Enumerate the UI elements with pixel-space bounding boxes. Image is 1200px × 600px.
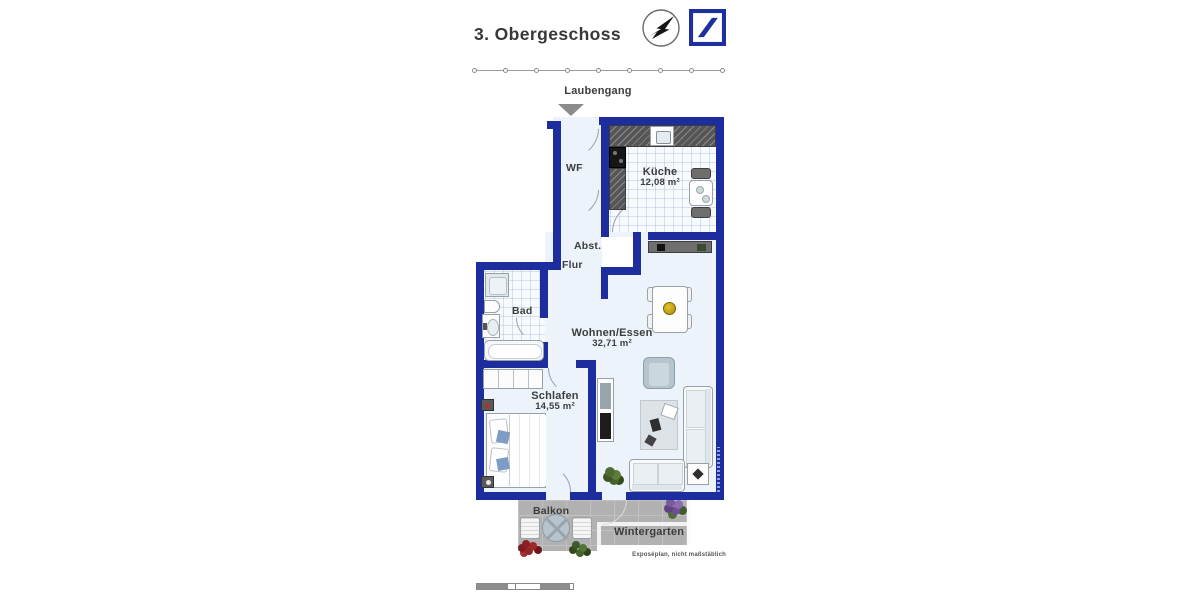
blue-cushion <box>496 457 510 471</box>
page-title: 3. Obergeschoss <box>474 24 621 45</box>
side-table <box>687 463 709 485</box>
room-label-abst: Abst. <box>574 240 601 252</box>
sofa-bottom <box>629 459 685 492</box>
balcony-chair-left <box>520 517 540 539</box>
entrance-arrow-icon <box>558 104 584 116</box>
room-area-schlafen: 14,55 m² <box>523 401 587 412</box>
deutsche-bank-logo <box>689 9 726 46</box>
table-deco <box>696 186 704 194</box>
room-label-bad: Bad <box>512 305 532 317</box>
sideboard-item <box>657 244 665 251</box>
sofa-cushion <box>686 390 706 428</box>
measure-dot <box>627 68 632 73</box>
sofa-right <box>683 386 713 468</box>
laptop <box>660 403 679 420</box>
tv-bench <box>597 378 614 442</box>
measure-dot <box>503 68 508 73</box>
wall-bath-right-upper <box>540 262 548 318</box>
wintergarten-edge-right <box>687 500 691 548</box>
red-flower-plant <box>522 540 530 548</box>
nightstand-deco <box>486 480 491 485</box>
sink-basin <box>656 131 671 144</box>
wall-kitchen-bottom <box>648 232 724 240</box>
kitchen-stove <box>609 147 626 168</box>
scale-segment <box>516 584 541 589</box>
measure-dot <box>689 68 694 73</box>
room-label-balkon: Balkon <box>533 505 569 517</box>
floorplan-sheet: 3. Obergeschoss Laubengang <box>0 0 1200 600</box>
sideboard-item <box>697 244 706 251</box>
wall-hall-stub <box>601 275 608 299</box>
nightstand-bottom <box>481 476 494 488</box>
bathtub <box>484 340 544 361</box>
wall-bottom-b <box>570 492 602 500</box>
nightstand-top <box>481 399 494 411</box>
side-table-item <box>692 468 703 479</box>
sofa-cushion <box>686 429 706 467</box>
sofa-cushion <box>633 463 658 485</box>
footer-note: Exposéplan, nicht maßstäblich <box>606 552 726 558</box>
stove-burner <box>619 159 623 163</box>
wall-bedroom-right <box>588 360 596 500</box>
wall-bottom-a <box>476 492 546 500</box>
wall-storage-bottom <box>601 267 641 275</box>
shower <box>485 273 509 297</box>
scale-segment <box>477 584 508 589</box>
wall-watermark <box>717 447 720 492</box>
room-area-wohnen: 32,71 m² <box>568 338 656 349</box>
measure-dot <box>658 68 663 73</box>
measure-dot <box>534 68 539 73</box>
measure-dot <box>565 68 570 73</box>
measure-dot <box>596 68 601 73</box>
stove-burner <box>613 151 617 155</box>
green-plant-balcony <box>572 541 580 549</box>
media-equipment <box>600 383 611 409</box>
balcony-chair-right <box>572 517 592 539</box>
kitchen-table <box>689 180 713 206</box>
armchair <box>643 357 675 389</box>
laubengang-label: Laubengang <box>558 85 638 97</box>
double-bed <box>486 413 546 488</box>
scale-segment <box>508 584 516 589</box>
wintergarten-edge-bottom <box>597 545 691 551</box>
sink-basin <box>487 319 499 336</box>
kitchen-chair-top <box>691 168 711 179</box>
scale-segment <box>570 584 573 589</box>
wall-kitchen-top <box>599 117 724 125</box>
room-label-wf: WF <box>566 162 583 174</box>
tub-inner <box>488 344 542 359</box>
wall-bath-top <box>476 262 561 270</box>
storage-closet-floor <box>602 237 633 267</box>
balcony-table <box>542 514 570 542</box>
scale-bar <box>476 583 574 590</box>
fruit-bowl <box>663 302 676 315</box>
room-area-kueche: 12,08 m² <box>630 177 690 188</box>
compass-north-icon <box>641 8 681 48</box>
kitchen-chair-bottom <box>691 207 711 218</box>
table-deco <box>702 195 710 203</box>
duvet <box>509 415 546 486</box>
wall-wf-top-stub <box>547 121 561 129</box>
bathroom-sink <box>482 314 500 338</box>
room-label-wintergarten: Wintergarten <box>614 526 684 538</box>
nightstand-deco <box>485 403 490 408</box>
wardrobe <box>483 369 543 389</box>
measure-dot <box>472 68 477 73</box>
rug-item <box>644 434 656 446</box>
rug-item <box>650 418 662 432</box>
armchair-seat <box>649 363 669 386</box>
wall-bedroom-top-left <box>476 360 548 368</box>
room-label-flur: Flur <box>562 259 583 271</box>
green-plant-living <box>605 467 615 477</box>
kitchen-counter-left <box>609 168 626 210</box>
wall-wf-left <box>553 121 561 270</box>
wall-kitchen-left <box>601 121 609 237</box>
wall-bottom-c <box>626 492 724 500</box>
scale-segment <box>541 584 570 589</box>
wall-right-exterior <box>716 117 724 500</box>
measure-dot <box>720 68 725 73</box>
sofa-cushion <box>658 463 683 485</box>
kitchen-sink <box>650 126 674 146</box>
faucet <box>483 323 487 330</box>
rug <box>640 400 678 450</box>
sideboard <box>648 241 712 253</box>
tv <box>600 413 611 439</box>
blue-cushion <box>496 430 510 444</box>
toilet <box>484 300 500 313</box>
shower-tray <box>489 277 507 295</box>
